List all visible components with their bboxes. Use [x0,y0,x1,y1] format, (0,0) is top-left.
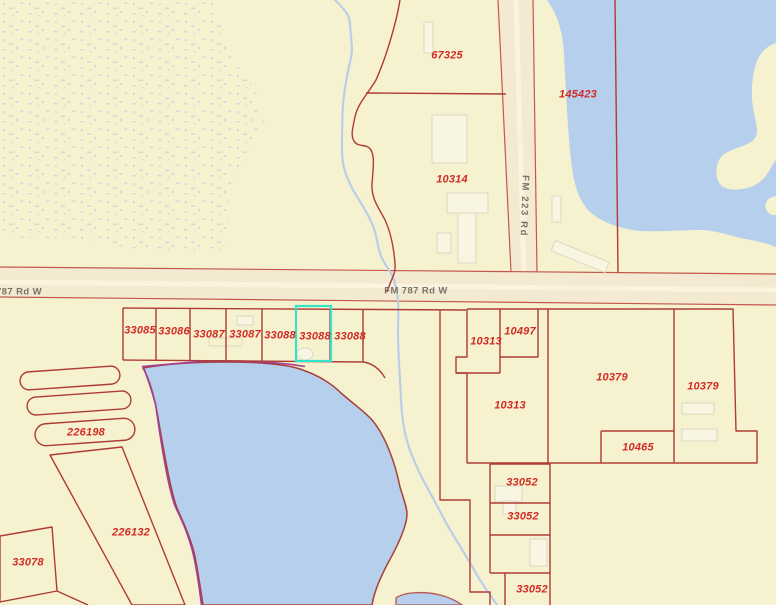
building-footprint [682,403,714,414]
parcel-label-selected[interactable]: 33088 [299,332,331,343]
parcel-label[interactable]: 10313 [494,401,526,412]
map-canvas[interactable] [0,0,776,605]
parcel-label[interactable]: 10497 [504,327,536,338]
building-footprint [447,193,488,213]
building-footprint [458,213,476,263]
parcel-label[interactable]: 33052 [516,585,548,596]
parcel-label[interactable]: 226198 [67,428,105,439]
parcel-label[interactable]: 10379 [687,382,719,393]
building-footprint [297,348,313,360]
parcel-label[interactable]: 33052 [507,512,539,523]
building-footprint [432,115,467,163]
building-footprint [552,196,561,222]
road-label-fm223: FM 223 Rd [518,175,530,237]
building-footprint [237,316,253,325]
road-label-fm787: FM 787 Rd W [384,286,448,296]
parcel-label[interactable]: 10313 [470,337,502,348]
parcel-label[interactable]: 226132 [112,528,150,539]
parcel-label[interactable]: 33087 [229,330,261,341]
building-footprint [424,22,433,53]
building-footprint [682,429,717,441]
marsh-texture-area [0,0,264,253]
parcel-label[interactable]: 33088 [334,332,366,343]
building-footprint [530,539,547,566]
parcel-label[interactable]: 33085 [124,326,156,337]
parcel-label[interactable]: 10465 [622,443,654,454]
parcel-label[interactable]: 33052 [506,478,538,489]
parcel-label[interactable]: 67325 [431,51,463,62]
parcel-label[interactable]: 145423 [559,90,597,101]
parcel-map-viewport[interactable]: { "map_type": "county-appraisal-parcel-m… [0,0,776,605]
parcel-label[interactable]: 10314 [436,175,468,186]
parcel-label[interactable]: 33087 [193,330,225,341]
road-label-fm787-west: 787 Rd W [0,287,42,297]
parcel-label[interactable]: 33086 [158,327,190,338]
parcel-label[interactable]: 33088 [264,331,296,342]
building-footprint [437,233,451,253]
parcel-label[interactable]: 10379 [596,373,628,384]
parcel-label[interactable]: 33078 [12,558,44,569]
